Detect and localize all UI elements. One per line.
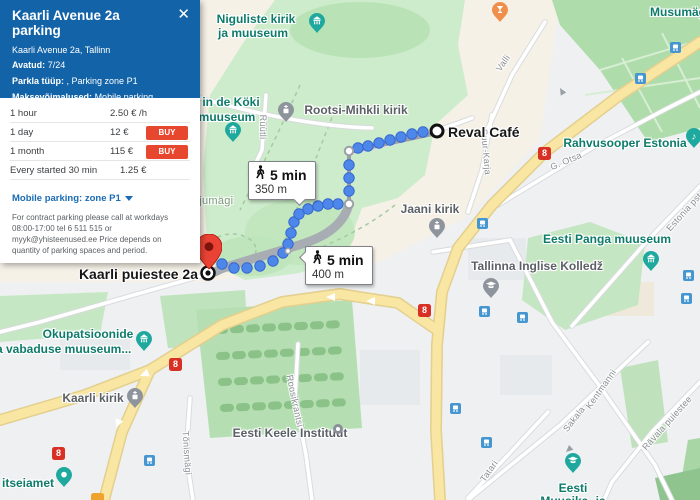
mobile-parking-section: Mobile parking: zone P1 For contract par… — [0, 180, 200, 256]
school-pin-icon[interactable] — [565, 453, 581, 478]
transit-station-icon[interactable] — [681, 293, 692, 304]
museum-pin-icon[interactable] — [225, 122, 241, 147]
walk-distance: 400 m — [312, 269, 364, 281]
poi-label-kok-line1[interactable]: in de Köki — [202, 95, 259, 109]
field-value: 7/24 — [48, 60, 66, 70]
panel-title: Kaarli Avenue 2a parking — [12, 8, 188, 38]
transit-station-icon[interactable] — [670, 42, 681, 53]
transit-station-icon[interactable] — [450, 403, 461, 414]
mobile-parking-toggle[interactable]: Mobile parking: zone P1 — [12, 193, 133, 204]
tariff-label: 1 day — [10, 127, 110, 138]
tariff-label: Every started 30 min — [10, 165, 120, 176]
tariff-label: 1 month — [10, 146, 110, 157]
route-shield-8: 8 — [169, 358, 182, 371]
music-pin-icon[interactable]: ♪ — [686, 128, 700, 153]
church-pin-icon[interactable] — [429, 218, 445, 243]
transit-station-icon[interactable] — [683, 270, 694, 281]
walk-tooltip-350m: 5 min 350 m — [248, 161, 316, 200]
poi-label-muusika-line1[interactable]: Eesti — [559, 481, 588, 495]
government-pin-icon[interactable] — [56, 467, 72, 492]
poi-label-rootsi-mihkli[interactable]: Rootsi-Mihkli kirik — [304, 103, 407, 117]
tariff-price: 2.50 € /h — [110, 108, 156, 119]
route-shield-orange — [91, 493, 104, 500]
route-shield-8: 8 — [52, 447, 65, 460]
tariff-price: 1.25 € — [120, 165, 166, 176]
close-icon[interactable]: ✕ — [177, 7, 190, 22]
walk-tooltip-400m: 5 min 400 m — [305, 246, 373, 285]
poi-label-jaani-kirik[interactable]: Jaani kirik — [401, 202, 460, 216]
walk-time: 5 min — [327, 252, 364, 268]
panel-header: Kaarli Avenue 2a parking ✕ Kaarli Avenue… — [0, 0, 200, 98]
tariff-row: 1 month 115 € BUY — [10, 142, 190, 161]
museum-pin-icon[interactable] — [309, 13, 325, 38]
bar-pin-icon[interactable] — [492, 2, 508, 27]
field-label: Parkla tüüp: — [12, 76, 64, 86]
church-pin-icon[interactable] — [278, 102, 294, 127]
route-start-label[interactable]: Reval Café — [448, 124, 520, 140]
svg-text:♪: ♪ — [692, 132, 697, 143]
parking-info-panel: Kaarli Avenue 2a parking ✕ Kaarli Avenue… — [0, 0, 200, 263]
poi-label-kaarli-kirik[interactable]: Kaarli kirik — [62, 391, 123, 405]
transit-station-icon[interactable] — [517, 312, 528, 323]
field-value: , Parking zone P1 — [67, 76, 138, 86]
poi-label-muusika-line2[interactable]: Muusika- ja — [540, 494, 605, 500]
mobile-parking-heading: Mobile parking: zone P1 — [12, 193, 121, 204]
map-app: Rüütli Valli Suur-Karja G. Otsa Harjumäg… — [0, 0, 700, 500]
route-start-marker[interactable] — [431, 125, 443, 137]
panel-address: Kaarli Avenue 2a, Tallinn — [12, 45, 188, 55]
museum-pin-icon[interactable] — [643, 251, 659, 276]
tariff-row: 1 hour 2.50 € /h — [10, 104, 190, 123]
panel-field-type: Parkla tüüp: , Parking zone P1 — [12, 76, 188, 87]
walk-time: 5 min — [270, 167, 307, 183]
route-destination-label[interactable]: Kaarli puiestee 2a — [60, 266, 198, 282]
buy-button[interactable]: BUY — [146, 126, 188, 140]
church-pin-icon[interactable] — [127, 388, 143, 413]
route-shield-8: 8 — [538, 147, 551, 160]
street-label-ruutli: Rüütli — [258, 115, 268, 140]
poi-label-musumagi[interactable]: Musumägi — [650, 5, 700, 19]
poi-dot-icon[interactable] — [332, 423, 344, 443]
transit-station-icon[interactable] — [481, 437, 492, 448]
chevron-down-icon — [125, 196, 133, 201]
transit-station-icon[interactable] — [144, 455, 155, 466]
poi-label-itseiamet[interactable]: itseiamet — [2, 476, 54, 490]
mobile-parking-note: For contract parking please call at work… — [12, 212, 188, 256]
tariff-table: 1 hour 2.50 € /h 1 day 12 € BUY 1 month … — [0, 98, 200, 180]
poi-label-rahvusooper[interactable]: Rahvusooper Estonia — [563, 136, 686, 150]
transit-station-icon[interactable] — [479, 306, 490, 317]
museum-pin-icon[interactable] — [136, 331, 152, 356]
buy-button[interactable]: BUY — [146, 145, 188, 159]
poi-label-okupatsioonide-line2[interactable]: ja vabaduse muuseum... — [0, 342, 131, 356]
transit-station-icon[interactable] — [635, 73, 646, 84]
route-shield-8: 8 — [418, 304, 431, 317]
school-pin-icon[interactable] — [483, 278, 499, 303]
poi-label-eesti-panga[interactable]: Eesti Panga muuseum — [543, 232, 671, 246]
tariff-label: 1 hour — [10, 108, 110, 119]
walking-icon — [312, 250, 323, 269]
poi-label-okupatsioonide-line1[interactable]: Okupatsioonide — [43, 327, 134, 341]
poi-label-niguliste-line2[interactable]: ja muuseum — [218, 26, 288, 40]
transit-station-icon[interactable] — [477, 218, 488, 229]
field-label: Avatud: — [12, 60, 45, 70]
tariff-row: Every started 30 min 1.25 € — [10, 161, 190, 180]
tariff-row: 1 day 12 € BUY — [10, 123, 190, 142]
panel-field-opened: Avatud: 7/24 — [12, 60, 188, 71]
walking-icon — [255, 165, 266, 184]
poi-label-keele-instituut[interactable]: Eesti Keele Instituut — [233, 426, 348, 440]
field-label: Maksevõimalused: — [12, 92, 92, 102]
poi-label-inglise-kolledz[interactable]: Tallinna Inglise Kolledž — [471, 259, 603, 273]
poi-label-niguliste-line1[interactable]: Niguliste kirik — [217, 12, 296, 26]
